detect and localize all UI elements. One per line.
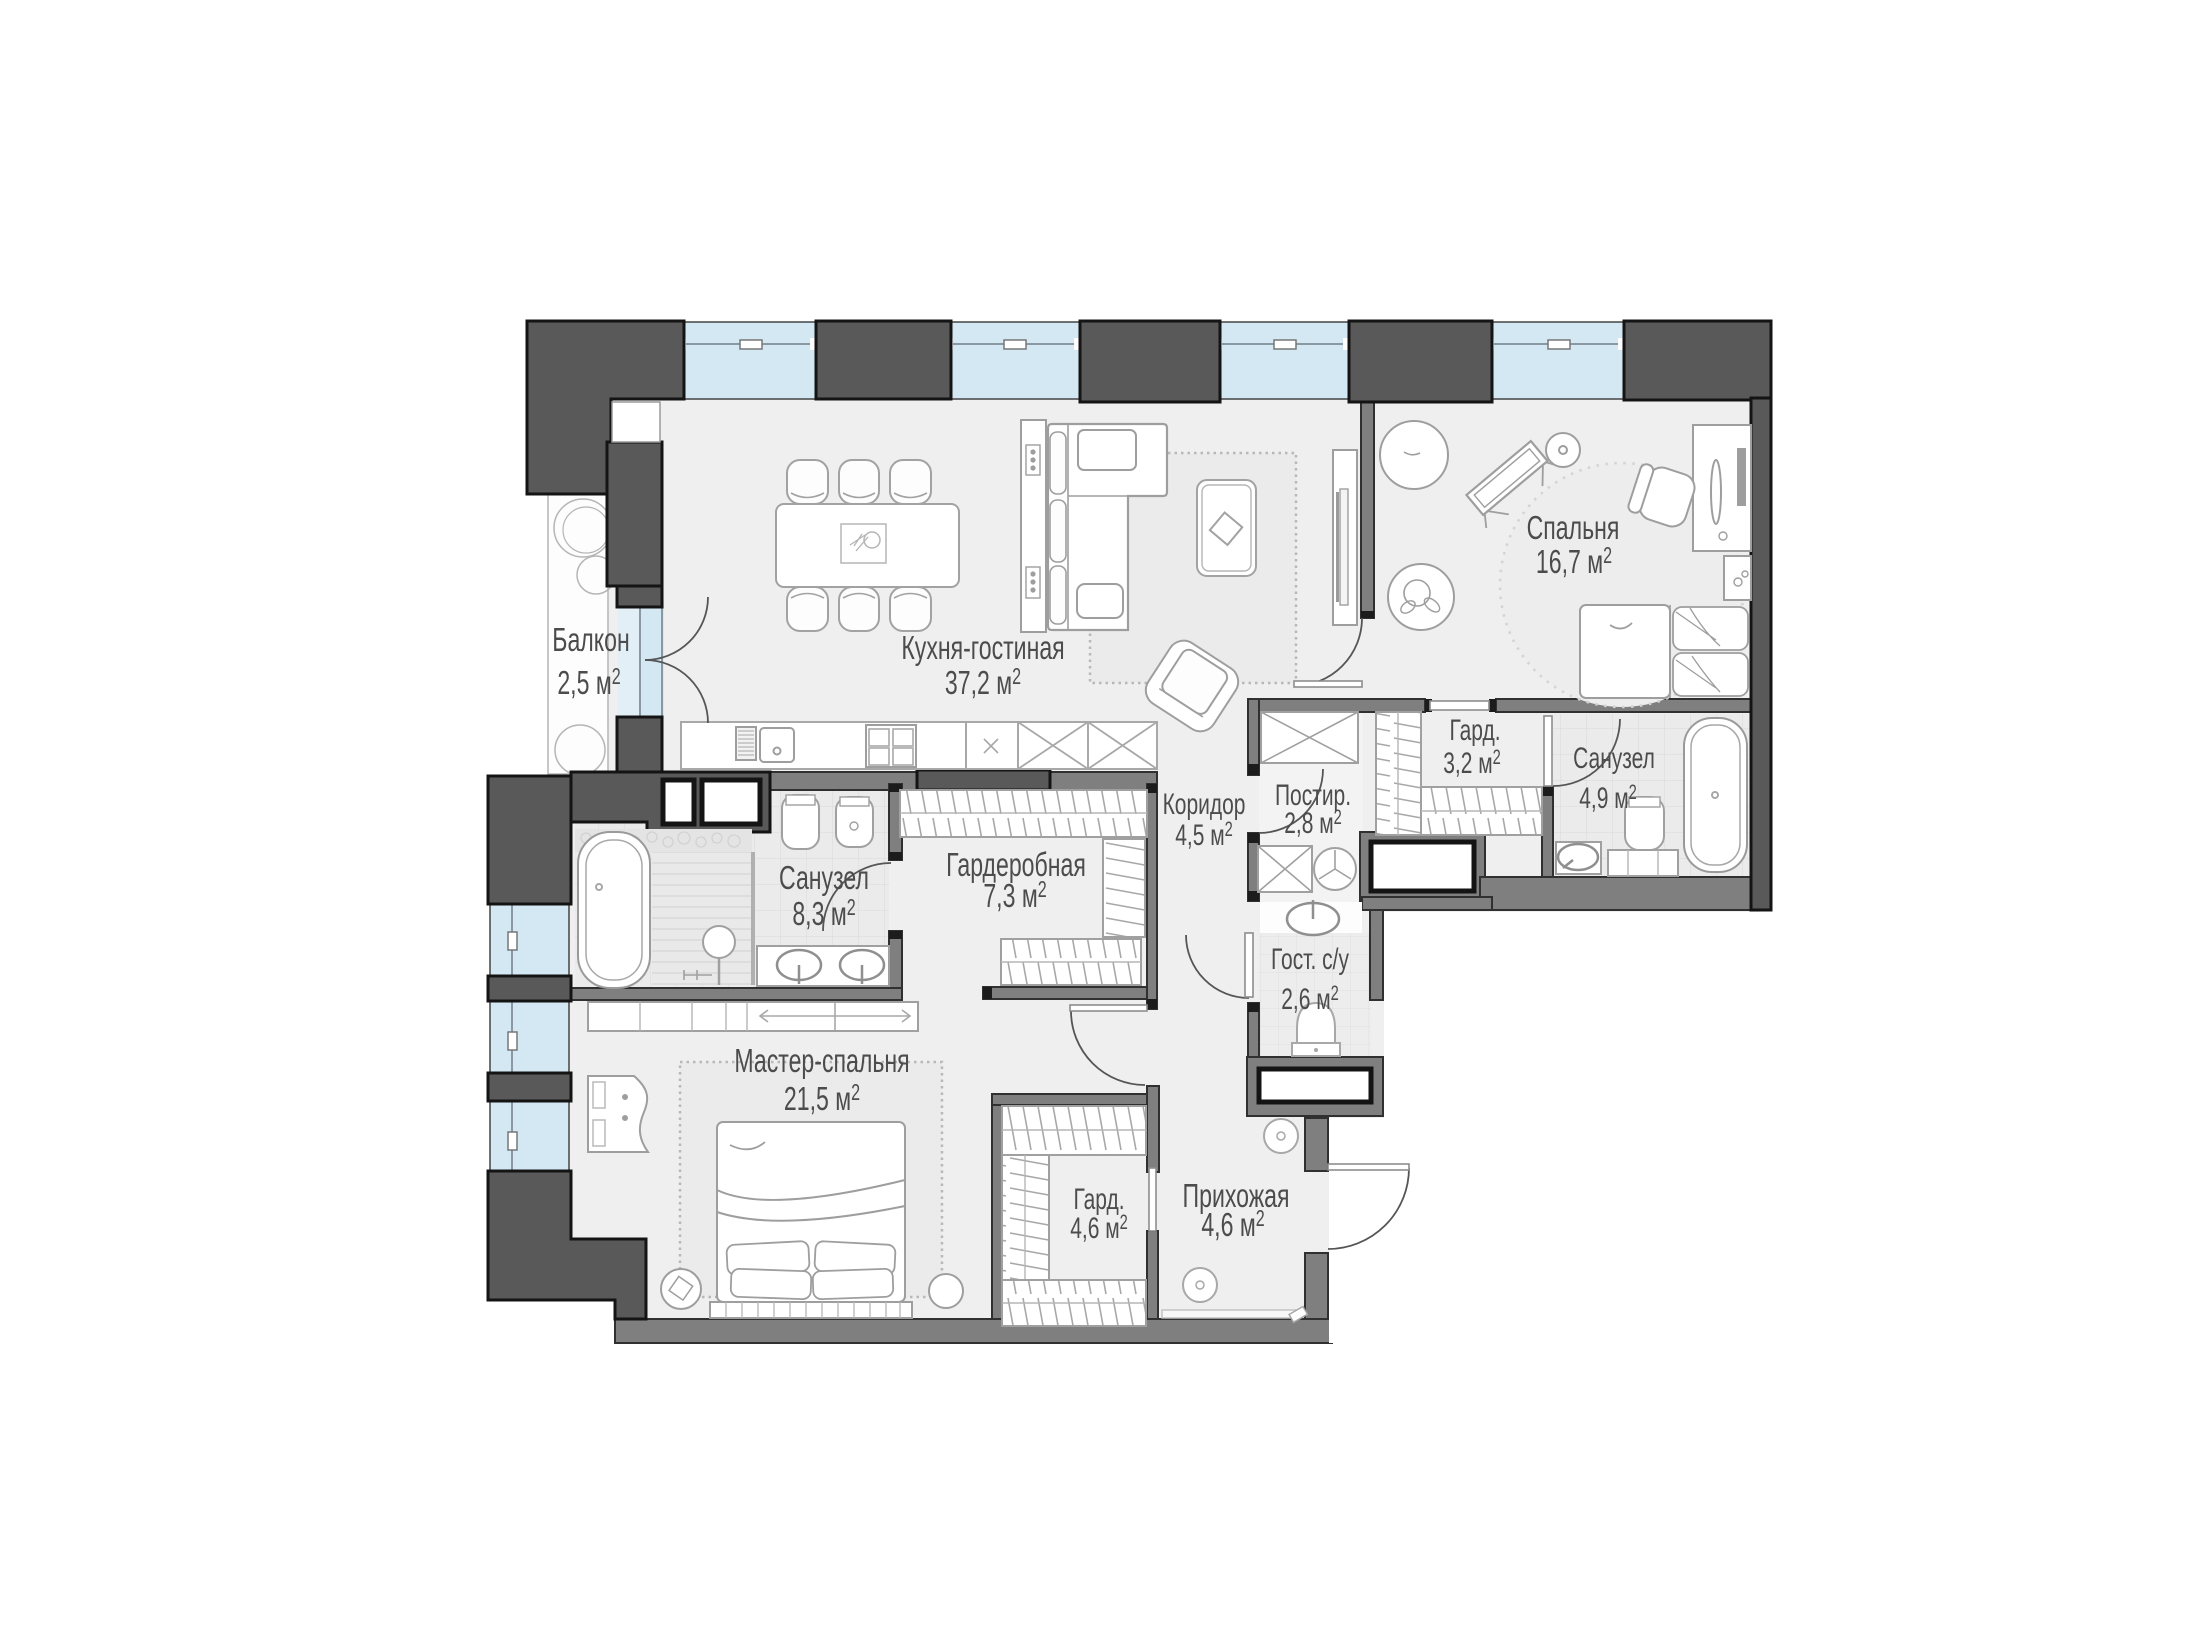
svg-text:37,2 м2: 37,2 м2: [945, 664, 1021, 702]
svg-text:4,6 м2: 4,6 м2: [1201, 1206, 1264, 1244]
svg-text:Санузел: Санузел: [779, 860, 869, 897]
svg-text:2,6 м2: 2,6 м2: [1281, 981, 1339, 1015]
svg-text:Кухня-гостиная: Кухня-гостиная: [901, 630, 1064, 667]
svg-text:2,8 м2: 2,8 м2: [1284, 805, 1342, 839]
svg-text:2,5 м2: 2,5 м2: [557, 664, 620, 702]
svg-text:Спальня: Спальня: [1527, 510, 1620, 547]
svg-text:4,6 м2: 4,6 м2: [1070, 1210, 1128, 1244]
svg-text:Гард.: Гард.: [1449, 715, 1500, 747]
svg-text:4,9 м2: 4,9 м2: [1579, 780, 1637, 814]
svg-text:Гост. с/у: Гост. с/у: [1271, 944, 1349, 976]
svg-text:4,5 м2: 4,5 м2: [1175, 817, 1233, 851]
svg-text:Коридор: Коридор: [1163, 789, 1246, 821]
svg-text:16,7 м2: 16,7 м2: [1536, 543, 1612, 581]
svg-text:8,3 м2: 8,3 м2: [792, 895, 855, 933]
svg-text:21,5 м2: 21,5 м2: [784, 1080, 860, 1118]
svg-text:Балкон: Балкон: [552, 622, 629, 659]
svg-text:7,3 м2: 7,3 м2: [983, 877, 1046, 915]
svg-text:Гард.: Гард.: [1073, 1184, 1124, 1216]
svg-text:Мастер-спальня: Мастер-спальня: [734, 1043, 909, 1080]
svg-text:3,2 м2: 3,2 м2: [1443, 745, 1501, 779]
svg-text:Санузел: Санузел: [1573, 743, 1655, 775]
